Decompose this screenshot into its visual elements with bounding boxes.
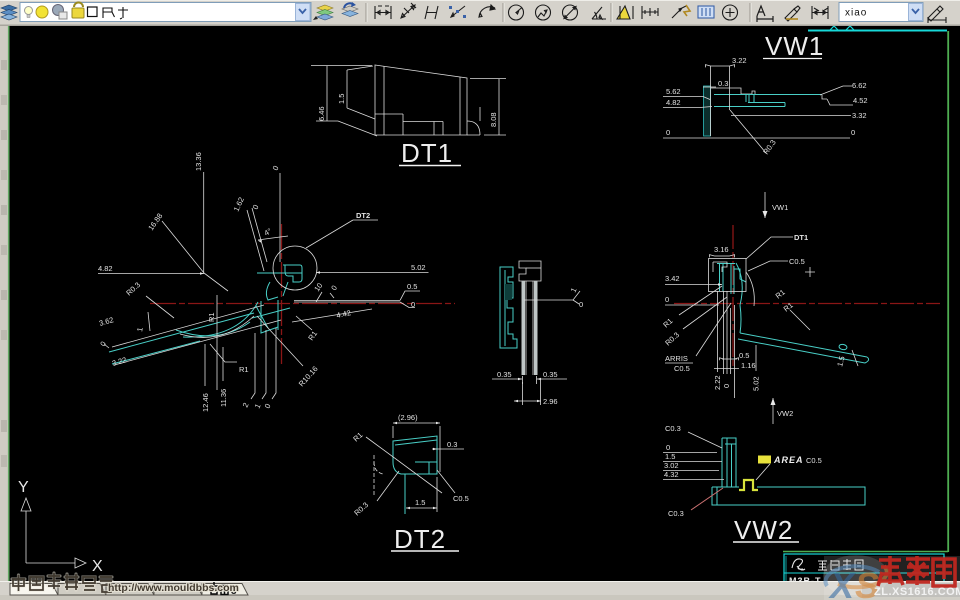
svg-text:5.02: 5.02 (752, 376, 761, 391)
svg-text:C0.5: C0.5 (806, 456, 822, 465)
svg-text:3.42: 3.42 (665, 274, 680, 283)
svg-text:R1: R1 (239, 365, 249, 374)
svg-text:C0.5: C0.5 (453, 494, 469, 503)
svg-text:0: 0 (665, 295, 669, 304)
svg-text:VW1: VW1 (765, 31, 824, 61)
svg-text:C0.3: C0.3 (665, 424, 681, 433)
svg-text:DT2: DT2 (356, 211, 370, 220)
svg-text:3: 3 (231, 586, 237, 597)
svg-text:C0.5: C0.5 (674, 364, 690, 373)
svg-text:0.3: 0.3 (718, 79, 728, 88)
svg-text:VW2: VW2 (777, 409, 793, 418)
svg-text:(2.96): (2.96) (398, 413, 418, 422)
svg-text:X: X (92, 558, 103, 575)
svg-text:VW1: VW1 (772, 203, 788, 212)
svg-text:8.08: 8.08 (489, 112, 498, 127)
svg-text:3.32: 3.32 (852, 111, 867, 120)
svg-text:2.96: 2.96 (543, 397, 558, 406)
svg-text:0: 0 (722, 384, 731, 388)
svg-text:0: 0 (666, 128, 670, 137)
svg-text:0.3: 0.3 (447, 440, 457, 449)
svg-text:Y: Y (18, 479, 29, 496)
svg-text:R1: R1 (207, 312, 216, 322)
svg-text:4.82: 4.82 (98, 264, 113, 273)
svg-text:VW2: VW2 (734, 515, 793, 545)
svg-text:DT2: DT2 (394, 524, 446, 554)
svg-text:0: 0 (411, 300, 415, 309)
svg-text:C0.5: C0.5 (789, 257, 805, 266)
svg-text:3.16: 3.16 (714, 245, 729, 254)
svg-text:xiao: xiao (845, 8, 867, 19)
svg-text:0.35: 0.35 (497, 370, 512, 379)
svg-text:1.5: 1.5 (337, 94, 346, 104)
svg-text:C0.3: C0.3 (668, 509, 684, 518)
svg-text:13.36: 13.36 (194, 152, 203, 171)
svg-text:3.22: 3.22 (732, 56, 747, 65)
svg-text:0.35: 0.35 (543, 370, 558, 379)
svg-text:5.02: 5.02 (411, 263, 426, 272)
svg-text:0.5: 0.5 (739, 351, 749, 360)
svg-text:DT1: DT1 (794, 233, 808, 242)
svg-text:0: 0 (851, 128, 855, 137)
svg-text:1.5: 1.5 (415, 498, 425, 507)
svg-text:2.22: 2.22 (713, 375, 722, 390)
svg-text:6.46: 6.46 (317, 106, 326, 121)
svg-text:3.02: 3.02 (664, 461, 679, 470)
svg-text:11.36: 11.36 (219, 389, 228, 407)
svg-text:DT1: DT1 (401, 138, 453, 168)
svg-text:1.16: 1.16 (741, 361, 756, 370)
svg-text:4.82: 4.82 (666, 98, 681, 107)
svg-text:0: 0 (579, 300, 583, 309)
svg-text:4.32: 4.32 (664, 470, 679, 479)
svg-text:0.5: 0.5 (407, 282, 417, 291)
svg-text:4.52: 4.52 (853, 96, 868, 105)
svg-text:6.62: 6.62 (852, 81, 867, 90)
svg-text:AREA: AREA (773, 455, 804, 465)
svg-text:5.62: 5.62 (666, 87, 681, 96)
svg-text:0: 0 (666, 443, 670, 452)
svg-text:ARRIS: ARRIS (665, 354, 688, 363)
svg-text:1.5: 1.5 (665, 452, 675, 461)
svg-text:12.46: 12.46 (201, 393, 210, 412)
